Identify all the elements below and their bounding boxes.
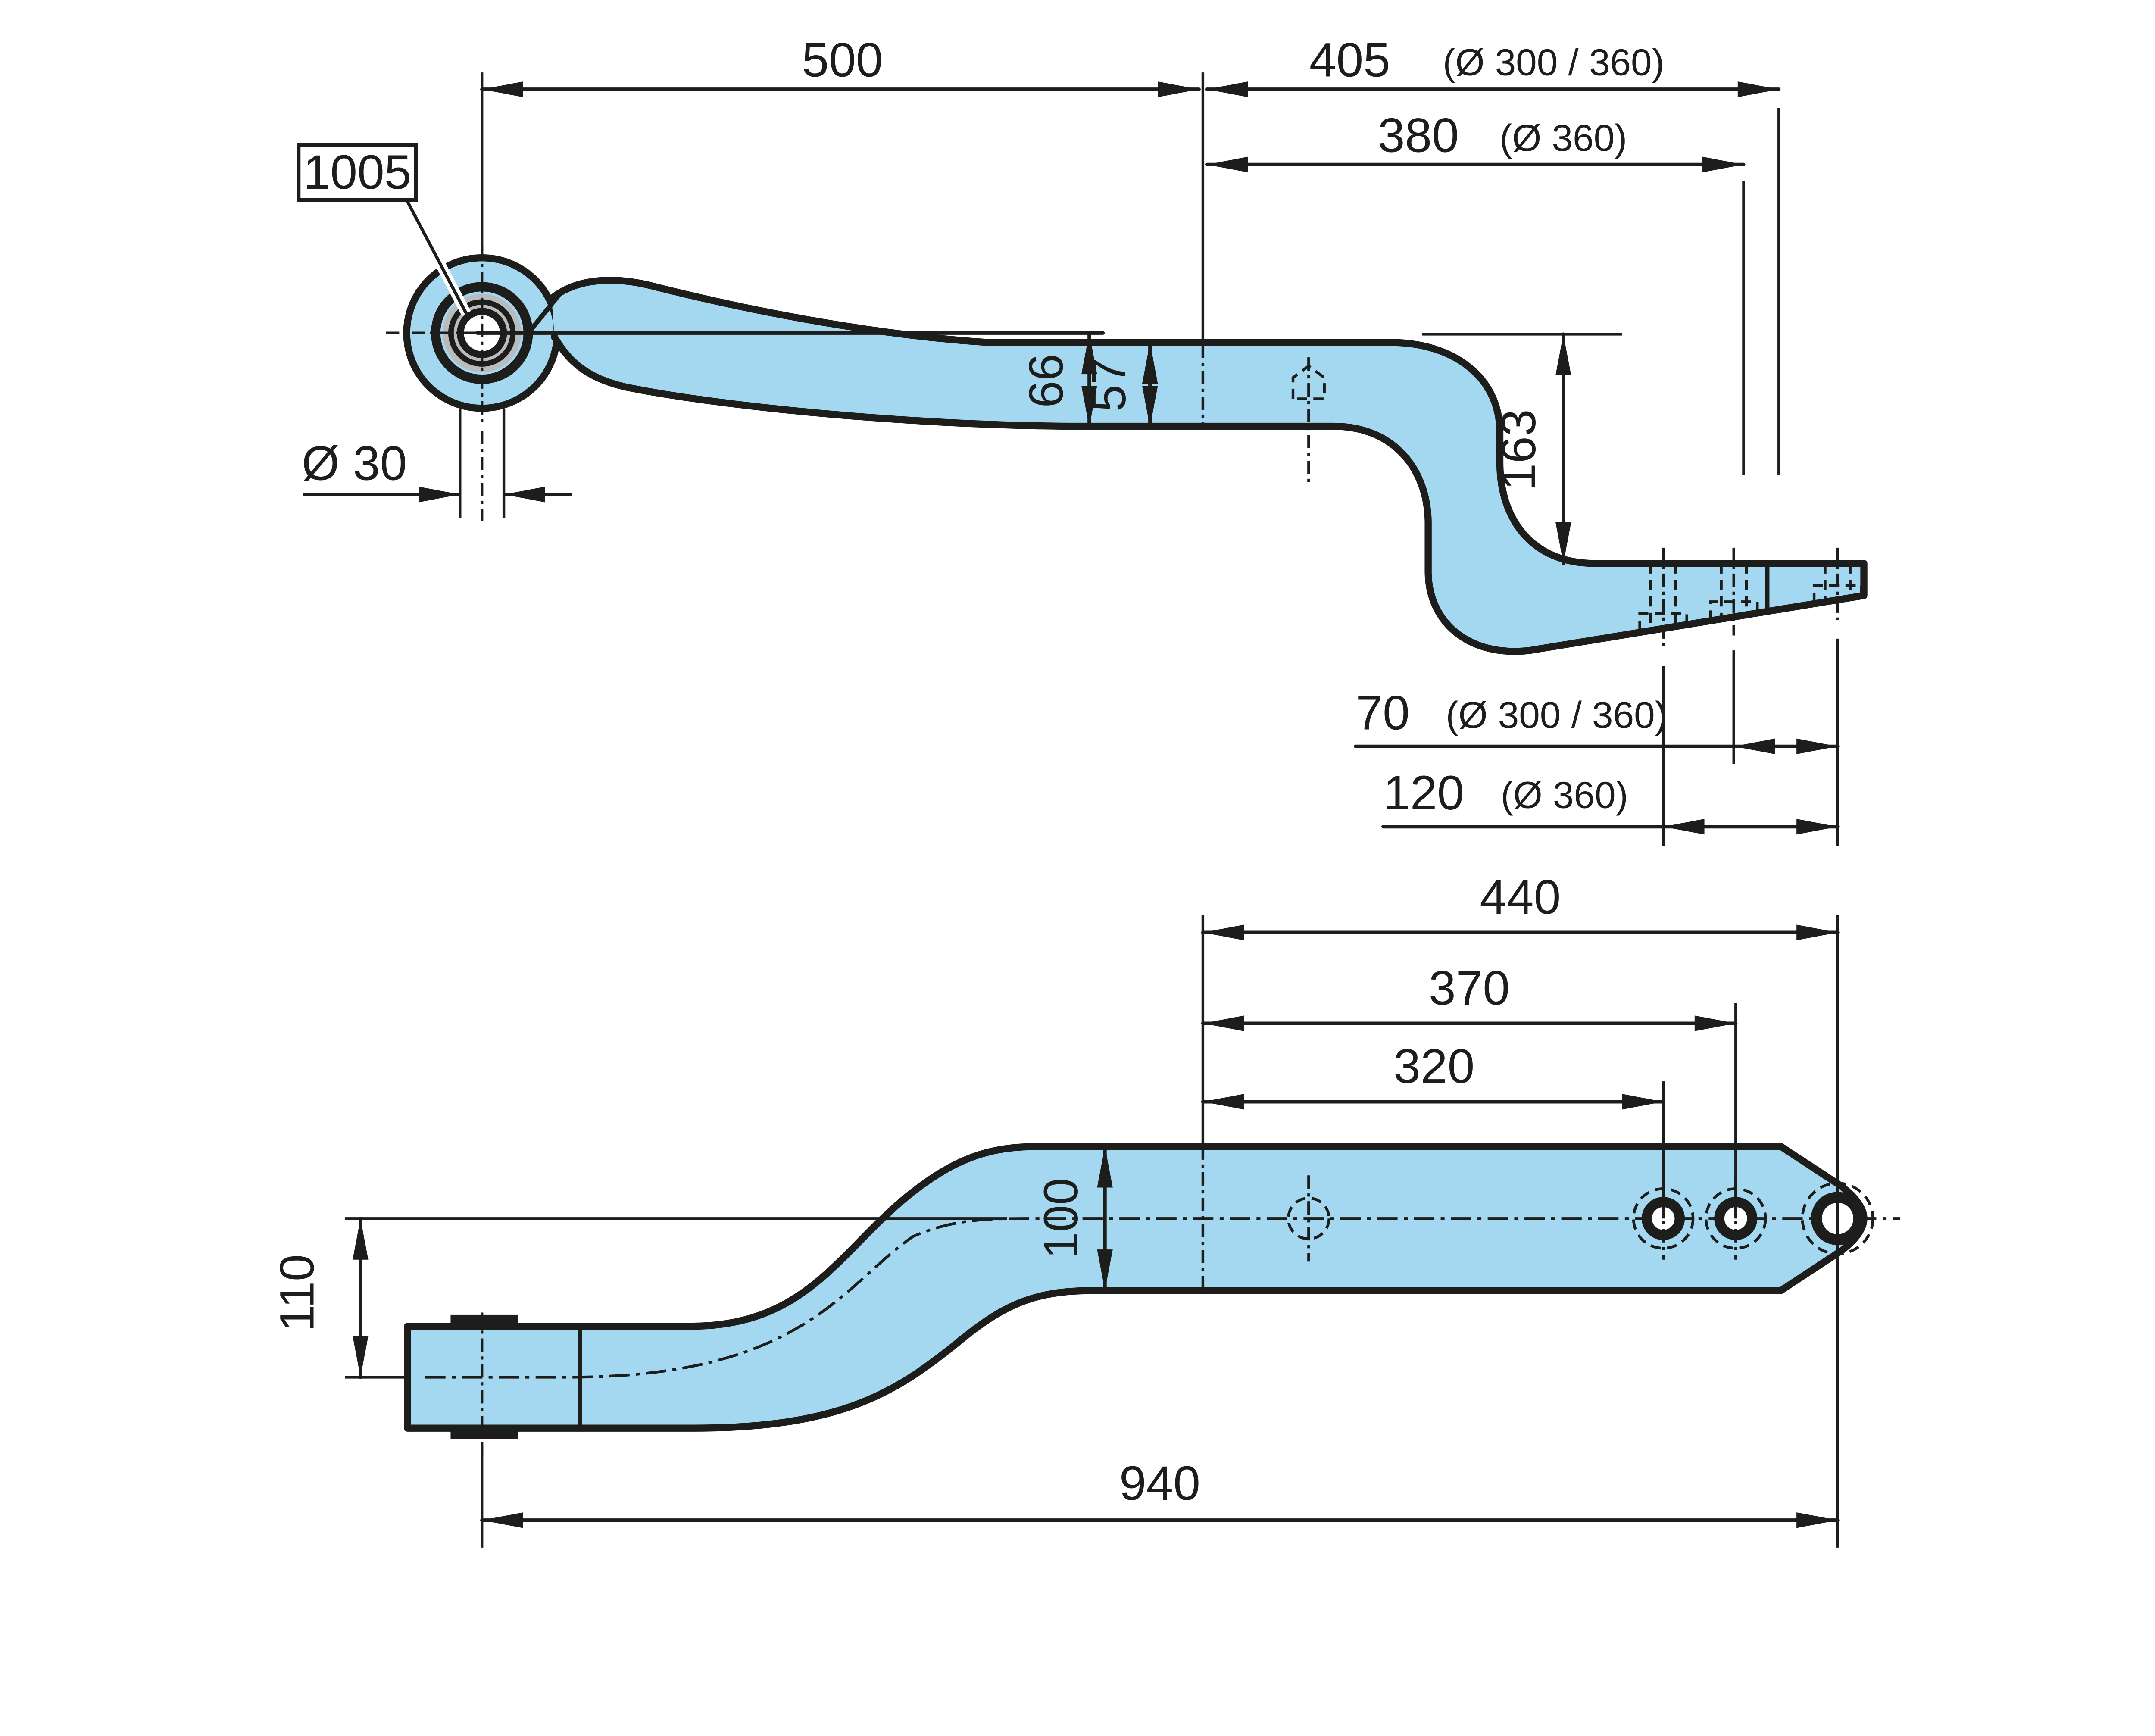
dim-940-label: 940 xyxy=(1119,1456,1200,1510)
dim-370-label: 370 xyxy=(1429,961,1510,1015)
leaf-spring-plan-profile xyxy=(407,1146,1864,1428)
dim-66-label: 66 xyxy=(1018,354,1073,408)
dim-405-label: 405 xyxy=(1309,32,1390,87)
bottom-view: 440 370 320 100 xyxy=(269,870,1900,1548)
dim-110-label: 110 xyxy=(269,1254,324,1332)
dim-440-label: 440 xyxy=(1480,870,1561,924)
part-number-label: 1005 xyxy=(303,145,412,199)
dim-eye-bore: Ø 30 xyxy=(302,409,570,521)
dim-120: 120 (Ø 360) xyxy=(1383,765,1838,834)
dim-380-note: (Ø 360) xyxy=(1499,117,1627,159)
dim-370: 370 xyxy=(1203,961,1736,1031)
dim-57-label: 57 xyxy=(1081,358,1136,412)
dim-320: 320 xyxy=(1203,1039,1663,1110)
dim-eye-bore-label: Ø 30 xyxy=(302,436,407,490)
dim-100-label: 100 xyxy=(1034,1178,1088,1259)
dim-163-label: 163 xyxy=(1491,409,1546,490)
bushing-tab-bottom xyxy=(450,1428,518,1439)
technical-drawing-page: 500 405 (Ø 300 / 360) 380 (Ø 360) xyxy=(0,0,2155,1578)
dim-500-label: 500 xyxy=(802,32,883,87)
leaf-spring-technical-drawing: 500 405 (Ø 300 / 360) 380 (Ø 360) xyxy=(0,0,2155,1578)
dim-440: 440 xyxy=(1203,870,1838,940)
dim-405-note: (Ø 300 / 360) xyxy=(1443,42,1664,84)
dim-70: 70 (Ø 300 / 360) xyxy=(1355,686,1837,754)
side-view: 500 405 (Ø 300 / 360) 380 (Ø 360) xyxy=(299,32,1864,846)
dim-500: 500 xyxy=(482,32,1199,251)
dim-940: 940 xyxy=(482,1446,1837,1548)
dim-320-label: 320 xyxy=(1393,1039,1474,1093)
bushing-tab-top xyxy=(450,1315,518,1327)
dim-120-note: (Ø 360) xyxy=(1501,774,1628,816)
leaf-spring-side-profile xyxy=(552,280,1864,651)
dim-70-note: (Ø 300 / 360) xyxy=(1446,694,1668,736)
dim-380-label: 380 xyxy=(1378,108,1459,162)
dim-120-label: 120 xyxy=(1383,765,1464,820)
dim-70-label: 70 xyxy=(1355,686,1409,740)
